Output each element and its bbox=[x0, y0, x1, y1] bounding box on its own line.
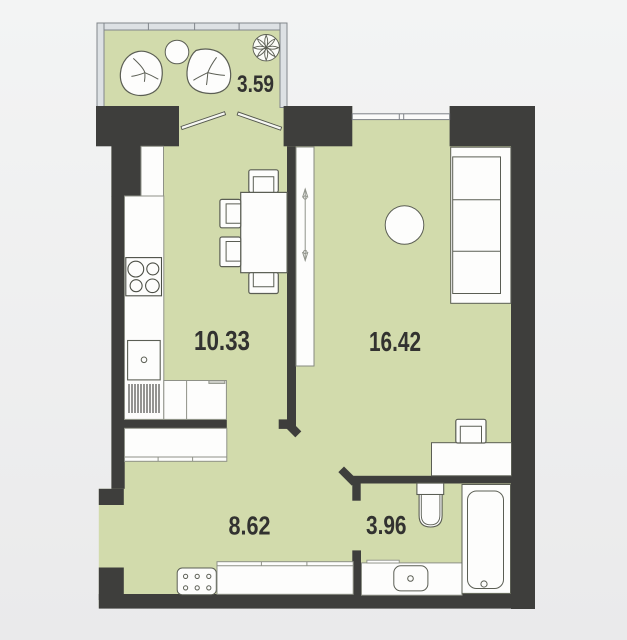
svg-text:10.33: 10.33 bbox=[194, 325, 250, 356]
svg-text:3.59: 3.59 bbox=[237, 71, 274, 98]
svg-text:16.42: 16.42 bbox=[369, 326, 421, 357]
svg-text:8.62: 8.62 bbox=[229, 511, 271, 541]
svg-text:3.96: 3.96 bbox=[366, 510, 407, 540]
